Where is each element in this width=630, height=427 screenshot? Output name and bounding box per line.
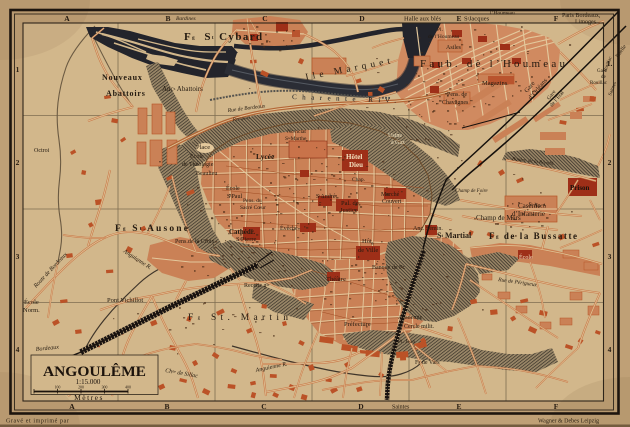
- svg-text:École: École: [519, 253, 533, 261]
- svg-text:Pal. de: Pal. de: [341, 200, 359, 207]
- svg-text:Bardines: Bardines: [176, 16, 196, 22]
- svg-text:École: École: [24, 298, 39, 306]
- svg-text:École: École: [190, 152, 204, 160]
- svg-text:Gravé et imprimé par: Gravé et imprimé par: [6, 419, 69, 425]
- svg-text:Nouveaux: Nouveaux: [102, 73, 143, 82]
- svg-text:Banque de Fr.: Banque de Fr.: [372, 265, 406, 271]
- svg-text:2: 2: [16, 158, 20, 167]
- svg-text:Sacré Cœur: Sacré Cœur: [240, 205, 266, 211]
- svg-text:Hôtel: Hôtel: [346, 153, 362, 161]
- svg-text:Chavagnes: Chavagnes: [442, 100, 469, 106]
- svg-text:A: A: [64, 14, 70, 23]
- svg-text:Wagner & Debes Leipzig: Wagner & Debes Leipzig: [538, 419, 599, 425]
- svg-text:Pens. de: Pens. de: [447, 92, 467, 98]
- svg-text:Couvert: Couvert: [382, 199, 402, 205]
- svg-text:F: F: [554, 402, 559, 411]
- svg-text:2: 2: [608, 158, 612, 167]
- svg-text:Anc. Sémin.: Anc. Sémin.: [413, 226, 443, 232]
- svg-text:Pl.: Pl.: [437, 27, 444, 33]
- svg-text:Asiles: Asiles: [446, 45, 462, 51]
- svg-text:École: École: [226, 184, 240, 192]
- svg-text:Abattoirs: Abattoirs: [106, 89, 146, 98]
- svg-text:Hôt.: Hôt.: [362, 238, 374, 245]
- svg-text:St Martial: St Martial: [437, 231, 472, 240]
- svg-text:Ancs Abattoirs: Ancs Abattoirs: [162, 85, 203, 93]
- svg-text:3: 3: [16, 252, 20, 261]
- svg-text:100: 100: [55, 385, 61, 389]
- svg-text:Chap.: Chap.: [352, 177, 366, 183]
- svg-text:Noviciat: Noviciat: [287, 129, 306, 135]
- svg-text:Fg St Cybard: Fg St Cybard: [184, 31, 264, 43]
- svg-text:E: E: [456, 14, 461, 23]
- svg-text:Fg de la Bussatte: Fg de la Bussatte: [489, 231, 577, 241]
- svg-text:Marché: Marché: [381, 192, 400, 198]
- svg-text:de Ville: de Ville: [358, 247, 378, 254]
- svg-text:Beaulieu: Beaulieu: [196, 171, 217, 177]
- svg-text:Magazins: Magazins: [482, 80, 508, 87]
- svg-text:Lycée: Lycée: [256, 152, 275, 161]
- svg-text:3: 3: [608, 252, 612, 261]
- svg-text:300: 300: [102, 385, 108, 389]
- svg-text:Norm.: Norm.: [23, 307, 40, 314]
- svg-text:C: C: [261, 402, 266, 411]
- svg-text:Octroi: Octroi: [34, 148, 50, 154]
- svg-text:Pens.de la Croix: Pens.de la Croix: [175, 239, 215, 245]
- svg-text:StAndré: StAndré: [316, 193, 336, 200]
- svg-text:Dieu: Dieu: [349, 161, 363, 169]
- svg-text:Cathédr.: Cathédr.: [229, 228, 255, 236]
- svg-text:Saintes: Saintes: [392, 405, 410, 411]
- svg-text:C: C: [262, 14, 267, 23]
- svg-text:D: D: [358, 402, 364, 411]
- svg-text:1: 1: [16, 65, 20, 74]
- svg-text:de Théologie: de Théologie: [182, 162, 214, 168]
- svg-text:200: 200: [78, 385, 84, 389]
- svg-text:Justice: Justice: [340, 207, 358, 214]
- svg-text:Halle aux blés: Halle aux blés: [404, 16, 442, 23]
- svg-text:Pont Vichillot: Pont Vichillot: [107, 297, 143, 304]
- svg-text:d’Infanterie: d’Infanterie: [512, 210, 545, 218]
- svg-text:Théâtre: Théâtre: [326, 276, 346, 283]
- svg-text:à Gaz: à Gaz: [391, 140, 405, 146]
- svg-text:Prison: Prison: [570, 184, 590, 192]
- svg-text:B: B: [165, 14, 170, 23]
- svg-text:Cercle milit.: Cercle milit.: [404, 324, 434, 330]
- svg-text:StPaul: StPaul: [227, 193, 242, 200]
- svg-text:4: 4: [608, 345, 612, 354]
- svg-text:Place: Place: [196, 144, 210, 151]
- svg-text:StPierre: StPierre: [236, 236, 257, 243]
- svg-text:E: E: [456, 402, 461, 411]
- svg-text:Pens. du: Pens. du: [243, 198, 262, 204]
- svg-text:Académie: Académie: [398, 315, 423, 321]
- svg-text:Rouillac: Rouillac: [590, 81, 608, 86]
- svg-text:Limoges: Limoges: [575, 20, 597, 26]
- svg-text:4: 4: [16, 345, 20, 354]
- svg-text:Recette gle: Recette gle: [244, 282, 270, 289]
- svg-text:Évêché: Évêché: [280, 224, 298, 232]
- svg-text:B: B: [164, 402, 169, 411]
- svg-text:A: A: [69, 402, 75, 411]
- svg-text:Préfecture: Préfecture: [344, 321, 371, 328]
- svg-text:D: D: [359, 14, 365, 23]
- svg-text:de l’Houmeau: de l’Houmeau: [428, 34, 460, 40]
- svg-text:F: F: [554, 14, 559, 23]
- svg-text:Pl. Jean: Pl. Jean: [398, 339, 415, 345]
- svg-text:Champ de Foire: Champ de Foire: [455, 189, 488, 194]
- svg-text:Usine: Usine: [388, 133, 402, 139]
- svg-text:Paris Bordeaux,: Paris Bordeaux,: [562, 13, 601, 19]
- svg-text:400: 400: [125, 385, 131, 389]
- svg-text:l’Houmeau: l’Houmeau: [490, 11, 515, 17]
